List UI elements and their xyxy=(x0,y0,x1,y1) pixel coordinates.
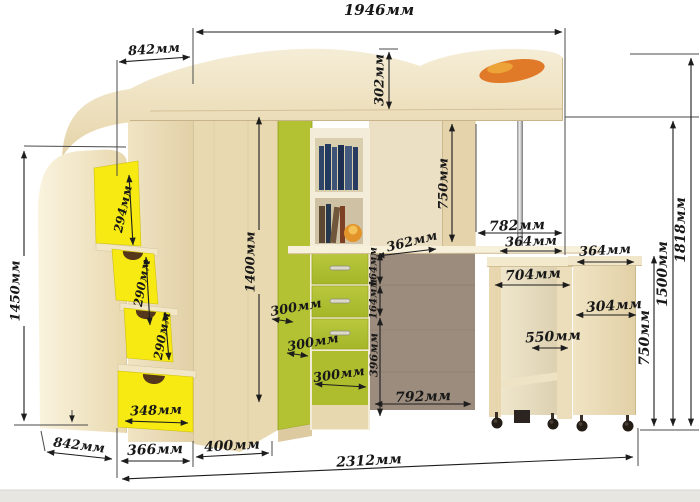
dim-label-pullout-desk-inner: 550мм xyxy=(525,328,582,347)
rolling-cabinet xyxy=(568,256,642,432)
wardrobe-front-panel xyxy=(194,110,278,452)
dim-label-desk-bay-width: 782мм xyxy=(489,217,545,235)
dim-label-wardrobe-width: 400мм xyxy=(204,437,261,456)
wardrobe-green-door xyxy=(278,112,312,442)
floor-strip xyxy=(0,490,700,502)
furniture-dimension-diagram: 1946мм 842мм 302мм 1450мм 294мм 290мм 29… xyxy=(0,0,700,502)
dim-label-drawer-height-2: 164мм xyxy=(369,279,380,319)
dim-label-headboard-rail-height: 302мм xyxy=(373,54,388,106)
desk-center-caster xyxy=(514,410,530,423)
dim-label-bed-length-top: 1946мм xyxy=(344,1,414,19)
dim-label-overall-height: 1818мм xyxy=(673,197,689,263)
dim-label-desk-bay-half: 364мм xyxy=(505,234,557,251)
dim-label-pullout-desk-width: 704мм xyxy=(505,266,562,285)
dim-label-bed-platform-height: 1500мм xyxy=(655,241,671,307)
dim-label-cabinet-top-width: 364мм xyxy=(579,242,632,260)
dim-label-wardrobe-door-height: 1400мм xyxy=(244,232,259,293)
dim-label-stair-unit-height: 1450мм xyxy=(9,261,24,322)
drawer-handle xyxy=(330,266,350,270)
dim-label-stair-drawer-width: 348мм xyxy=(130,403,182,420)
dim-label-underbed-clearance: 750мм xyxy=(437,158,452,210)
dim-label-niche-width: 792мм xyxy=(395,388,451,406)
dim-label-total-length: 2312мм xyxy=(336,451,402,470)
desk-back-panel xyxy=(369,246,475,410)
cabinet-caster xyxy=(577,415,588,432)
dim-label-lower-panel-height: 396мм xyxy=(368,333,381,377)
drawer-handle xyxy=(330,299,350,303)
dim-label-stair-unit-width: 366мм xyxy=(127,441,183,459)
column-plinth xyxy=(312,405,368,429)
desk-caster xyxy=(548,413,559,430)
dim-label-cabinet-height: 750мм xyxy=(637,310,653,366)
cabinet-caster xyxy=(623,415,634,432)
